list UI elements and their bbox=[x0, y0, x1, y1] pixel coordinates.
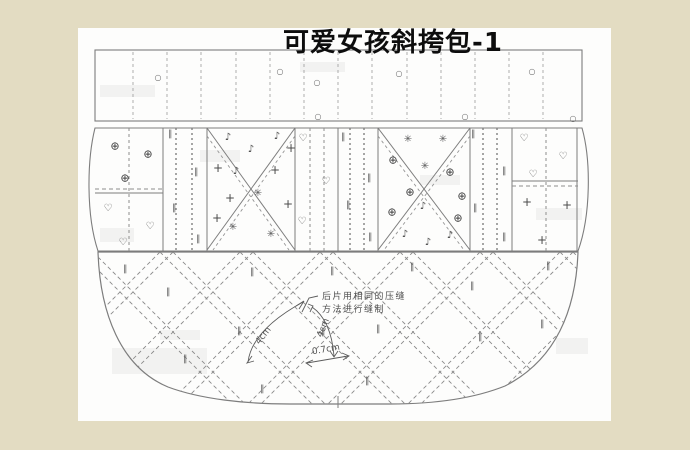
quilt-line bbox=[563, 252, 690, 422]
crosshatch-quilting bbox=[0, 252, 690, 422]
quilt-line bbox=[0, 252, 103, 422]
quilt-line bbox=[483, 252, 653, 422]
quilt-line bbox=[333, 252, 503, 422]
quilt-line bbox=[3, 252, 173, 422]
quilt-line bbox=[550, 252, 690, 422]
measure-arc-1 bbox=[248, 302, 303, 362]
quilt-line bbox=[310, 252, 480, 422]
quilt-line bbox=[83, 252, 253, 422]
quilt-line bbox=[560, 252, 690, 422]
pattern-diagram bbox=[0, 0, 690, 450]
quilt-line bbox=[80, 252, 250, 422]
striped-panels bbox=[176, 128, 497, 251]
x-block-1 bbox=[207, 128, 295, 250]
quilt-line bbox=[320, 252, 490, 422]
quilt-line bbox=[400, 252, 570, 422]
top-band bbox=[95, 50, 582, 121]
block-boundaries bbox=[163, 128, 577, 251]
annotation-line-1: 后片用相同的压缝 bbox=[322, 289, 406, 302]
quilt-line bbox=[0, 252, 93, 422]
block-flowers-hearts-left bbox=[95, 128, 163, 251]
block-hearts-plus-right bbox=[512, 128, 578, 251]
quilt-line bbox=[70, 252, 240, 422]
quilt-line bbox=[0, 252, 160, 422]
pattern-page: ○○○○○○○○⊕⊕⊕♡♡♡∥∥∥∥♪♪♪♪++++++✳✳✳♡♡♡∥∥∥∥⊕⊕… bbox=[0, 0, 690, 450]
annotation-line-2: 方法进行缝制 bbox=[322, 302, 385, 315]
quilt-line bbox=[573, 252, 690, 422]
quilt-line bbox=[470, 252, 640, 422]
quilt-line bbox=[390, 252, 560, 422]
quilt-line bbox=[403, 252, 573, 422]
quilt-line bbox=[13, 252, 183, 422]
quilt-line bbox=[93, 252, 263, 422]
heart-panel bbox=[310, 128, 324, 251]
quilt-line bbox=[0, 252, 90, 422]
quilt-line bbox=[160, 252, 330, 422]
band-quilt-lines bbox=[133, 52, 543, 119]
quilt-line bbox=[0, 252, 80, 422]
patchwork-band bbox=[89, 128, 588, 251]
quilt-line bbox=[163, 252, 333, 422]
bottom-outline bbox=[98, 252, 578, 404]
quilt-line bbox=[0, 252, 170, 422]
arrowhead bbox=[306, 360, 313, 367]
page-title: 可爱女孩斜挎包-1 bbox=[248, 22, 538, 59]
patchwork-outline bbox=[89, 128, 588, 251]
bottom-body bbox=[0, 252, 690, 422]
quilt-line bbox=[480, 252, 650, 422]
quilt-line bbox=[413, 252, 583, 422]
quilt-line bbox=[493, 252, 663, 422]
arrowhead bbox=[296, 301, 304, 309]
quilt-line bbox=[150, 252, 320, 422]
x-block-2 bbox=[378, 128, 470, 250]
